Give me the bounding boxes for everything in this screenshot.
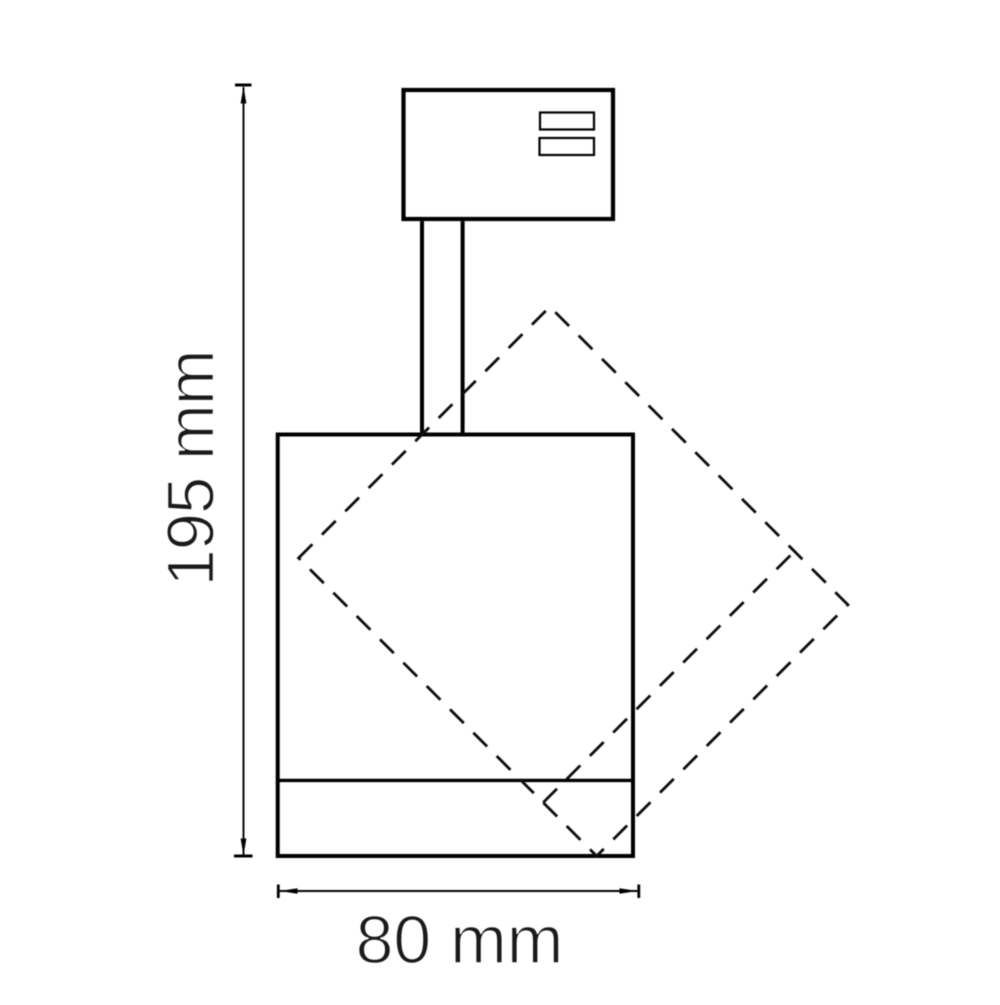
svg-text:80 mm: 80 mm bbox=[356, 902, 564, 978]
svg-text:195 mm: 195 mm bbox=[154, 350, 229, 586]
